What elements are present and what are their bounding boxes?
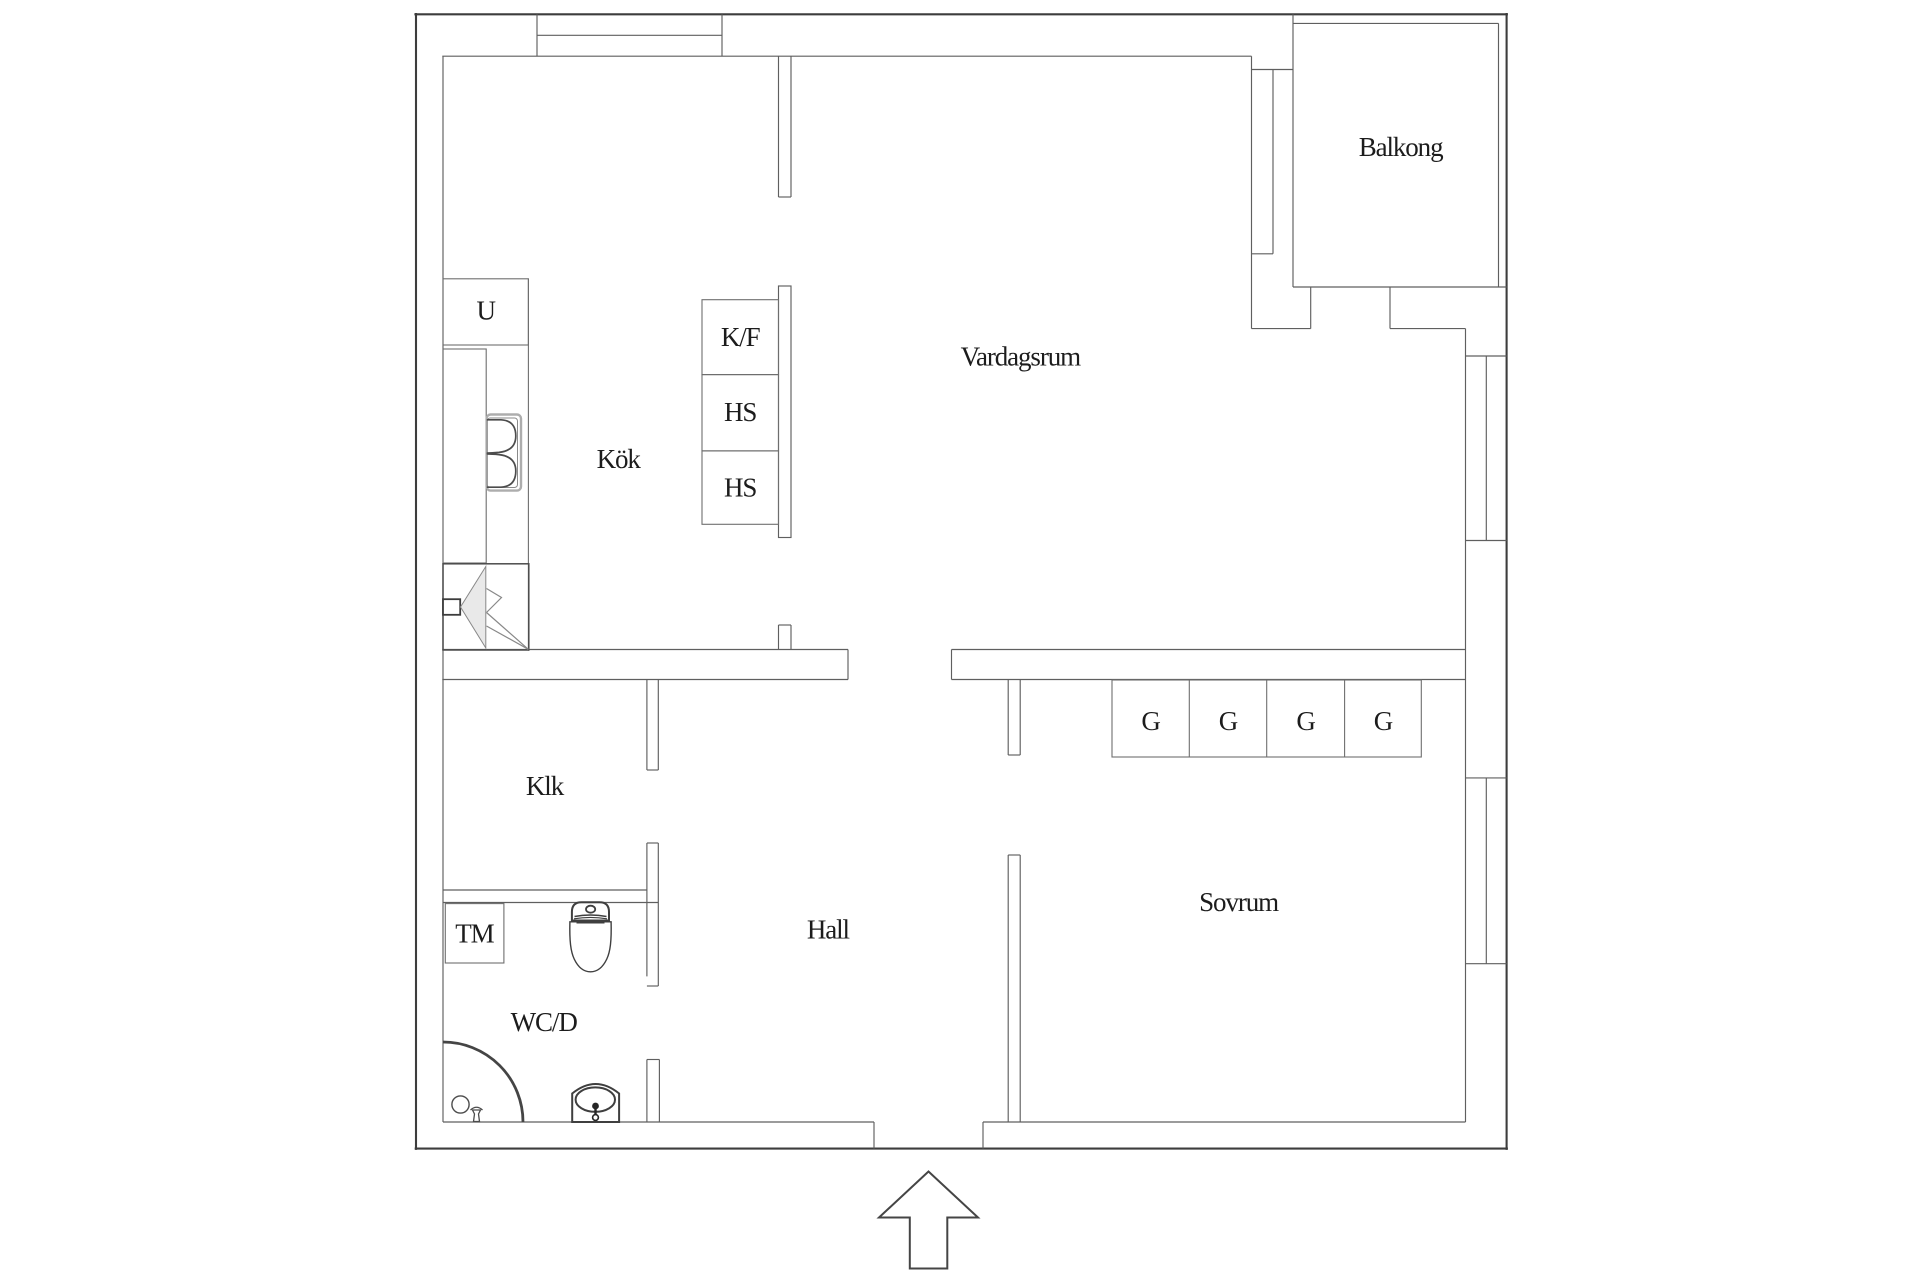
svg-text:Hall: Hall <box>807 915 850 945</box>
svg-text:Balkong: Balkong <box>1359 132 1443 162</box>
svg-text:TM: TM <box>455 919 494 949</box>
svg-text:Vardagsrum: Vardagsrum <box>961 342 1082 372</box>
svg-text:G: G <box>1374 706 1393 736</box>
svg-text:G: G <box>1219 706 1238 736</box>
svg-text:U: U <box>476 296 495 326</box>
svg-text:HS: HS <box>724 397 756 427</box>
svg-text:HS: HS <box>724 473 756 503</box>
svg-text:Sovrum: Sovrum <box>1199 887 1279 917</box>
svg-text:Kök: Kök <box>597 444 642 474</box>
svg-text:K/F: K/F <box>721 322 761 352</box>
svg-text:WC/D: WC/D <box>511 1007 578 1037</box>
svg-text:G: G <box>1141 706 1160 736</box>
svg-text:G: G <box>1296 706 1315 736</box>
svg-text:Klk: Klk <box>526 771 565 801</box>
